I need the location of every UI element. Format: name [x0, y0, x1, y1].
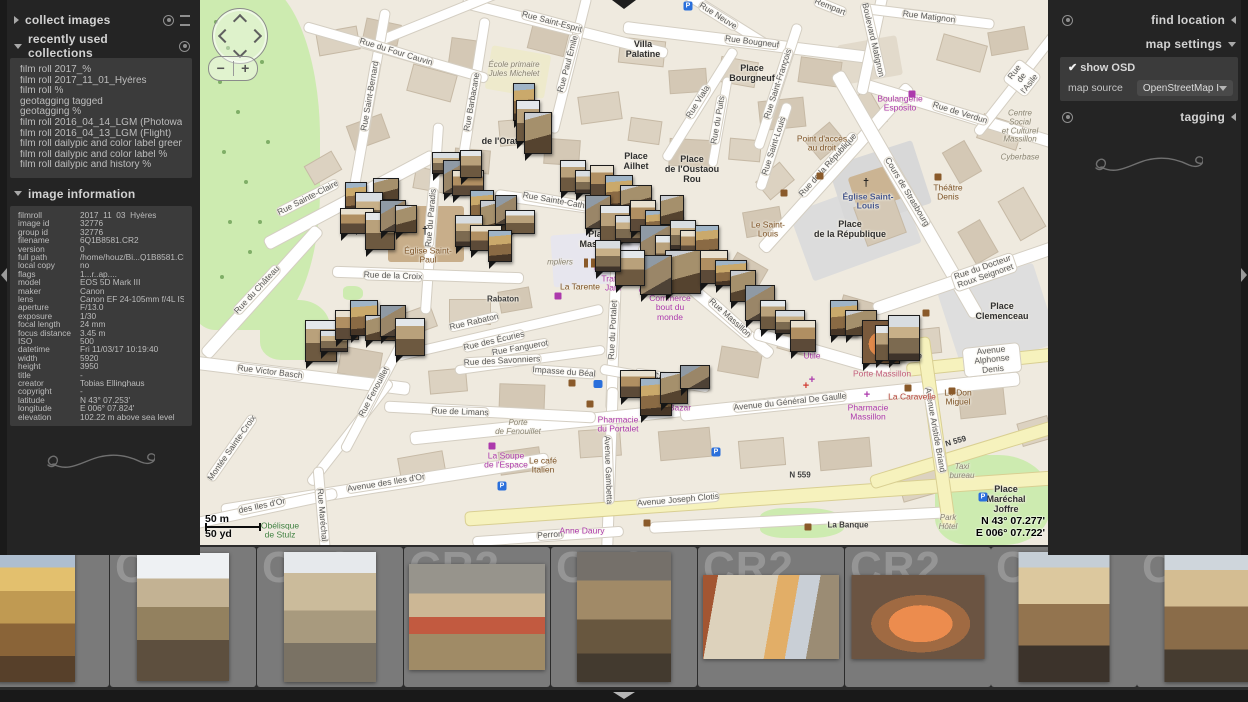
- module-title: image information: [28, 187, 135, 201]
- collapse-caret-icon: [1228, 42, 1236, 47]
- pan-left-icon[interactable]: [218, 29, 232, 43]
- collect-images-header[interactable]: collect images: [0, 10, 200, 30]
- module-title: tagging: [1180, 110, 1225, 124]
- map-building: [718, 347, 762, 378]
- info-value: 6Q1B8581.CR2: [80, 236, 139, 244]
- info-value: 5920: [80, 354, 98, 362]
- thumbnail-photo: [577, 552, 671, 682]
- map-photo-marker[interactable]: [488, 230, 512, 262]
- collection-item[interactable]: geotagging %: [20, 107, 182, 118]
- map-poi-mx-icon: +: [809, 374, 815, 386]
- map-poi-bed-icon: [594, 380, 603, 388]
- expand-caret-icon: [1231, 16, 1236, 24]
- collapse-right-panel-arrow-icon[interactable]: [1241, 268, 1247, 282]
- map-photo-marker[interactable]: [888, 315, 920, 361]
- zoom-in-button[interactable]: +: [234, 58, 258, 79]
- image-information-rows: filmroll2017_11_03_Hyèresimage id32776gr…: [10, 206, 192, 426]
- map-label: Impasse du Béal: [532, 365, 596, 379]
- map-street: [473, 526, 623, 545]
- map-cursor-coordinates: N 43° 07.277' E 006° 07.722': [976, 515, 1045, 540]
- map-source-value: OpenStreetMap I: [1143, 83, 1219, 94]
- filmstrip-thumbnail[interactable]: CR2: [257, 547, 403, 687]
- info-value: Fri 11/03/17 10:19:40: [80, 345, 158, 353]
- map-label: Obélisque de Stulz: [261, 522, 299, 541]
- map-building: [498, 288, 531, 313]
- map-scale-indicator: 50 m 50 yd: [205, 514, 261, 540]
- map-building: [806, 123, 843, 159]
- map-photo-marker[interactable]: [790, 320, 816, 352]
- collection-item[interactable]: film roll 2016_04_13_LGM (Flight): [20, 129, 182, 140]
- map-photo-marker[interactable]: [524, 112, 552, 154]
- module-find-location: find location: [1048, 10, 1248, 30]
- bottom-bar: [0, 690, 1248, 702]
- map-street: [314, 467, 331, 545]
- map-poi-rx-icon: +: [803, 380, 809, 392]
- filmstrip[interactable]: CR2CR2CR2CR2CR2CR2CR2CR2CR2: [0, 545, 1248, 690]
- thumbnail-photo: [852, 575, 985, 659]
- map-building: [739, 438, 785, 468]
- map-building: [629, 118, 662, 144]
- info-value: 0: [80, 245, 85, 253]
- filmstrip-thumbnail[interactable]: CR2: [0, 547, 109, 687]
- map-building: [937, 34, 986, 71]
- image-info-row: datetimeFri 11/03/17 10:19:40: [18, 345, 184, 353]
- collection-item[interactable]: geotagging tagged: [20, 97, 182, 108]
- dec-flourish: [45, 440, 155, 474]
- map-settings-header[interactable]: map settings: [1048, 34, 1248, 54]
- filmstrip-thumbnail[interactable]: CR2: [110, 547, 256, 687]
- map-poi-p-icon: P: [979, 493, 988, 502]
- collection-item[interactable]: film roll dailypic and color label %: [20, 150, 182, 161]
- map-building: [659, 428, 711, 460]
- map-view[interactable]: Rue Saint-EspritRue Paul ÉmileRue Saint-…: [200, 0, 1048, 545]
- map-poi-b-icon: [781, 190, 788, 197]
- right-panel: find location map settings ✔ show OSD ma…: [1048, 0, 1248, 555]
- thumbnail-photo: [409, 564, 545, 670]
- image-info-row: elevation102.22 m above sea level: [18, 413, 184, 421]
- image-info-row: height3950: [18, 362, 184, 370]
- collapse-caret-icon: [14, 191, 22, 196]
- map-street: [864, 4, 994, 29]
- darktable-map-view: collect images recently used collections…: [0, 0, 1248, 702]
- image-info-row: flags1...r..ap....: [18, 270, 184, 278]
- info-value: /home/houz/Bi...Q1B8581.CR2: [80, 253, 184, 261]
- map-settings-box: ✔ show OSD map source OpenStreetMap I: [1060, 57, 1238, 101]
- collection-item[interactable]: film roll dailypic and color label green: [20, 139, 182, 150]
- map-label: Rempart: [813, 0, 847, 17]
- info-value: 1/30: [80, 312, 96, 320]
- show-osd-row[interactable]: ✔ show OSD: [1068, 62, 1230, 74]
- map-building: [578, 92, 621, 123]
- map-building: [500, 384, 545, 410]
- pan-up-icon[interactable]: [233, 14, 247, 28]
- collapse-caret-icon: [14, 44, 22, 49]
- image-information-box: filmroll2017_11_03_Hyèresimage id32776gr…: [10, 206, 192, 426]
- map-poi-p-icon: P: [498, 482, 507, 491]
- map-photo-marker[interactable]: [395, 318, 425, 356]
- map-source-label: map source: [1068, 82, 1123, 94]
- collapse-top-panel-arrow-icon[interactable]: [612, 0, 636, 9]
- info-value: E 006° 07.824': [80, 404, 134, 412]
- map-poi-b-icon: [817, 173, 824, 180]
- collections-list: film roll 2017_%film roll 2017_11_01_Hyè…: [10, 58, 192, 178]
- thumbnail-photo: [1019, 552, 1110, 682]
- thumbnail-photo: [284, 552, 376, 682]
- tagging-header[interactable]: tagging: [1048, 107, 1248, 127]
- module-title: map settings: [1146, 37, 1222, 51]
- reset-icon[interactable]: [179, 41, 190, 52]
- filmstrip-thumbnail[interactable]: CR2: [1137, 547, 1248, 687]
- collapse-filmstrip-arrow-icon[interactable]: [613, 692, 635, 699]
- map-poi-b-icon: [644, 520, 651, 527]
- info-value: -: [80, 371, 83, 379]
- map-poi-ch-icon: †: [422, 225, 428, 237]
- filmstrip-thumbnail[interactable]: CR2: [698, 547, 844, 687]
- image-info-row: local copyno: [18, 261, 184, 269]
- checkbox-checked-icon[interactable]: ✔: [1068, 63, 1077, 74]
- map-poi-b-icon: [905, 385, 912, 392]
- pan-right-icon[interactable]: [248, 29, 262, 43]
- map-label: Pharmacie Massillon: [848, 404, 889, 423]
- image-info-row: width5920: [18, 354, 184, 362]
- map-poi-b-icon: [587, 401, 594, 408]
- collection-item[interactable]: film roll 2017_11_01_Hyères: [20, 76, 182, 87]
- image-info-row: focus distance3.45 m: [18, 329, 184, 337]
- module-image-information: image information filmroll2017_11_03_Hyè…: [0, 184, 200, 426]
- map-poi-p-icon: P: [712, 448, 721, 457]
- map-building: [943, 141, 981, 182]
- info-value: Canon EF 24-105mm f/4L IS: [80, 295, 184, 303]
- info-value: EOS 5D Mark III: [80, 278, 140, 286]
- collection-item[interactable]: film roll 2016_04_14_LGM (Photowalk): [20, 118, 182, 129]
- filmstrip-thumbnail[interactable]: CR2: [551, 547, 697, 687]
- dec-flourish: [1093, 143, 1203, 177]
- info-value: 2017_11_03_Hyères: [80, 211, 156, 219]
- scale-metric: 50 m: [205, 514, 261, 525]
- scale-imperial: 50 yd: [205, 529, 261, 540]
- map-photo-marker[interactable]: [680, 365, 710, 389]
- map-photo-marker[interactable]: [395, 205, 417, 233]
- module-collect-images: collect images: [0, 10, 200, 30]
- map-building: [999, 188, 1045, 240]
- image-info-row: modelEOS 5D Mark III: [18, 278, 184, 286]
- image-information-header[interactable]: image information: [0, 184, 200, 204]
- module-title: collect images: [25, 13, 111, 27]
- info-value: 500: [80, 337, 94, 345]
- module-title: find location: [1151, 13, 1225, 27]
- map-poi-m-icon: [489, 443, 496, 450]
- info-value: Tobias Ellinghaus: [80, 379, 145, 387]
- info-value: 3950: [80, 362, 98, 370]
- show-osd-label: show OSD: [1080, 62, 1135, 74]
- info-value: 102.22 m above sea level: [80, 413, 175, 421]
- info-value: F/13.0: [80, 303, 104, 311]
- collection-item[interactable]: film roll dailypic and history %: [20, 160, 182, 171]
- module-tagging: tagging: [1048, 107, 1248, 127]
- recently-used-collections-box: film roll 2017_%film roll 2017_11_01_Hyè…: [10, 58, 192, 178]
- info-value: 32776: [80, 219, 103, 227]
- map-photo-marker[interactable]: [595, 240, 621, 272]
- coordinate-latitude: N 43° 07.277': [976, 515, 1045, 528]
- info-value: 3.45 m: [80, 329, 105, 337]
- map-building: [988, 27, 1027, 55]
- info-value: no: [80, 261, 89, 269]
- map-poi-b-icon: [923, 310, 930, 317]
- info-value: 24 mm: [80, 320, 105, 328]
- left-panel: collect images recently used collections…: [0, 0, 200, 555]
- map-label: Montée Sainte-Croix: [206, 414, 258, 483]
- map-poi-m-icon: [909, 91, 916, 98]
- thumbnail-photo: [703, 575, 839, 659]
- info-value: 32776: [80, 228, 103, 236]
- info-label: elevation: [18, 413, 80, 421]
- expand-caret-icon: [1231, 113, 1236, 121]
- map-poi-bp-icon: [584, 259, 588, 268]
- map-label: Théâtre Denis: [933, 184, 962, 203]
- map-poi-b-icon: [569, 380, 576, 387]
- map-source-row: map source OpenStreetMap I: [1068, 80, 1230, 96]
- filmstrip-thumbnail[interactable]: CR2: [845, 547, 991, 687]
- map-poi-m-icon: [555, 293, 562, 300]
- presets-menu-icon[interactable]: [180, 15, 190, 26]
- map-zoom-control[interactable]: − +: [208, 56, 258, 81]
- info-value: -: [80, 387, 83, 395]
- reset-icon[interactable]: [1062, 15, 1073, 26]
- filmstrip-thumbnail[interactable]: CR2: [991, 547, 1137, 687]
- reset-icon[interactable]: [1062, 112, 1073, 123]
- info-value: N 43° 07.253': [80, 396, 130, 404]
- scale-bar: [205, 526, 261, 528]
- collapse-left-panel-arrow-icon[interactable]: [1, 268, 7, 282]
- thumbnail-photo: [0, 552, 75, 682]
- map-street: [385, 402, 595, 423]
- find-location-header[interactable]: find location: [1048, 10, 1248, 30]
- zoom-out-button[interactable]: −: [209, 58, 233, 79]
- module-recently-used-collections: recently used collections film roll 2017…: [0, 36, 200, 178]
- map-street: [455, 346, 605, 375]
- map-building: [669, 69, 706, 93]
- map-building: [819, 438, 871, 470]
- map-label: N 559: [789, 472, 810, 481]
- map-poi-b-icon: [805, 524, 812, 531]
- module-map-settings: map settings ✔ show OSD map source OpenS…: [1048, 34, 1248, 101]
- map-poi-b-icon: [935, 174, 942, 181]
- coordinate-longitude: E 006° 07.722': [976, 527, 1045, 540]
- map-poi-p-icon: P: [684, 2, 693, 11]
- dropdown-caret-icon: [1219, 86, 1227, 91]
- module-title: recently used collections: [28, 32, 167, 60]
- filmstrip-thumbnail[interactable]: CR2: [404, 547, 550, 687]
- map-poi-ch-icon: †: [863, 177, 869, 189]
- image-info-row: makerCanon: [18, 287, 184, 295]
- expand-caret-icon: [14, 16, 19, 24]
- recently-used-collections-header[interactable]: recently used collections: [0, 36, 200, 56]
- reset-icon[interactable]: [163, 15, 174, 26]
- thumbnail-photo: [137, 553, 229, 681]
- map-poi-b-icon: [949, 388, 956, 395]
- map-building: [959, 388, 1005, 418]
- map-green-area: [343, 286, 363, 300]
- map-poi-mx-icon: +: [864, 389, 870, 401]
- info-value: Canon: [80, 287, 104, 295]
- collection-item[interactable]: film roll %: [20, 86, 182, 97]
- map-building: [959, 220, 998, 263]
- map-building: [450, 300, 490, 324]
- map-source-dropdown[interactable]: OpenStreetMap I: [1137, 80, 1233, 96]
- thumbnail-photo: [1165, 552, 1248, 682]
- info-value: 1...r..ap....: [80, 270, 117, 278]
- map-label: Place Ailhet: [623, 152, 648, 172]
- map-photo-marker[interactable]: [460, 150, 482, 178]
- collection-item[interactable]: film roll 2017_%: [20, 65, 182, 76]
